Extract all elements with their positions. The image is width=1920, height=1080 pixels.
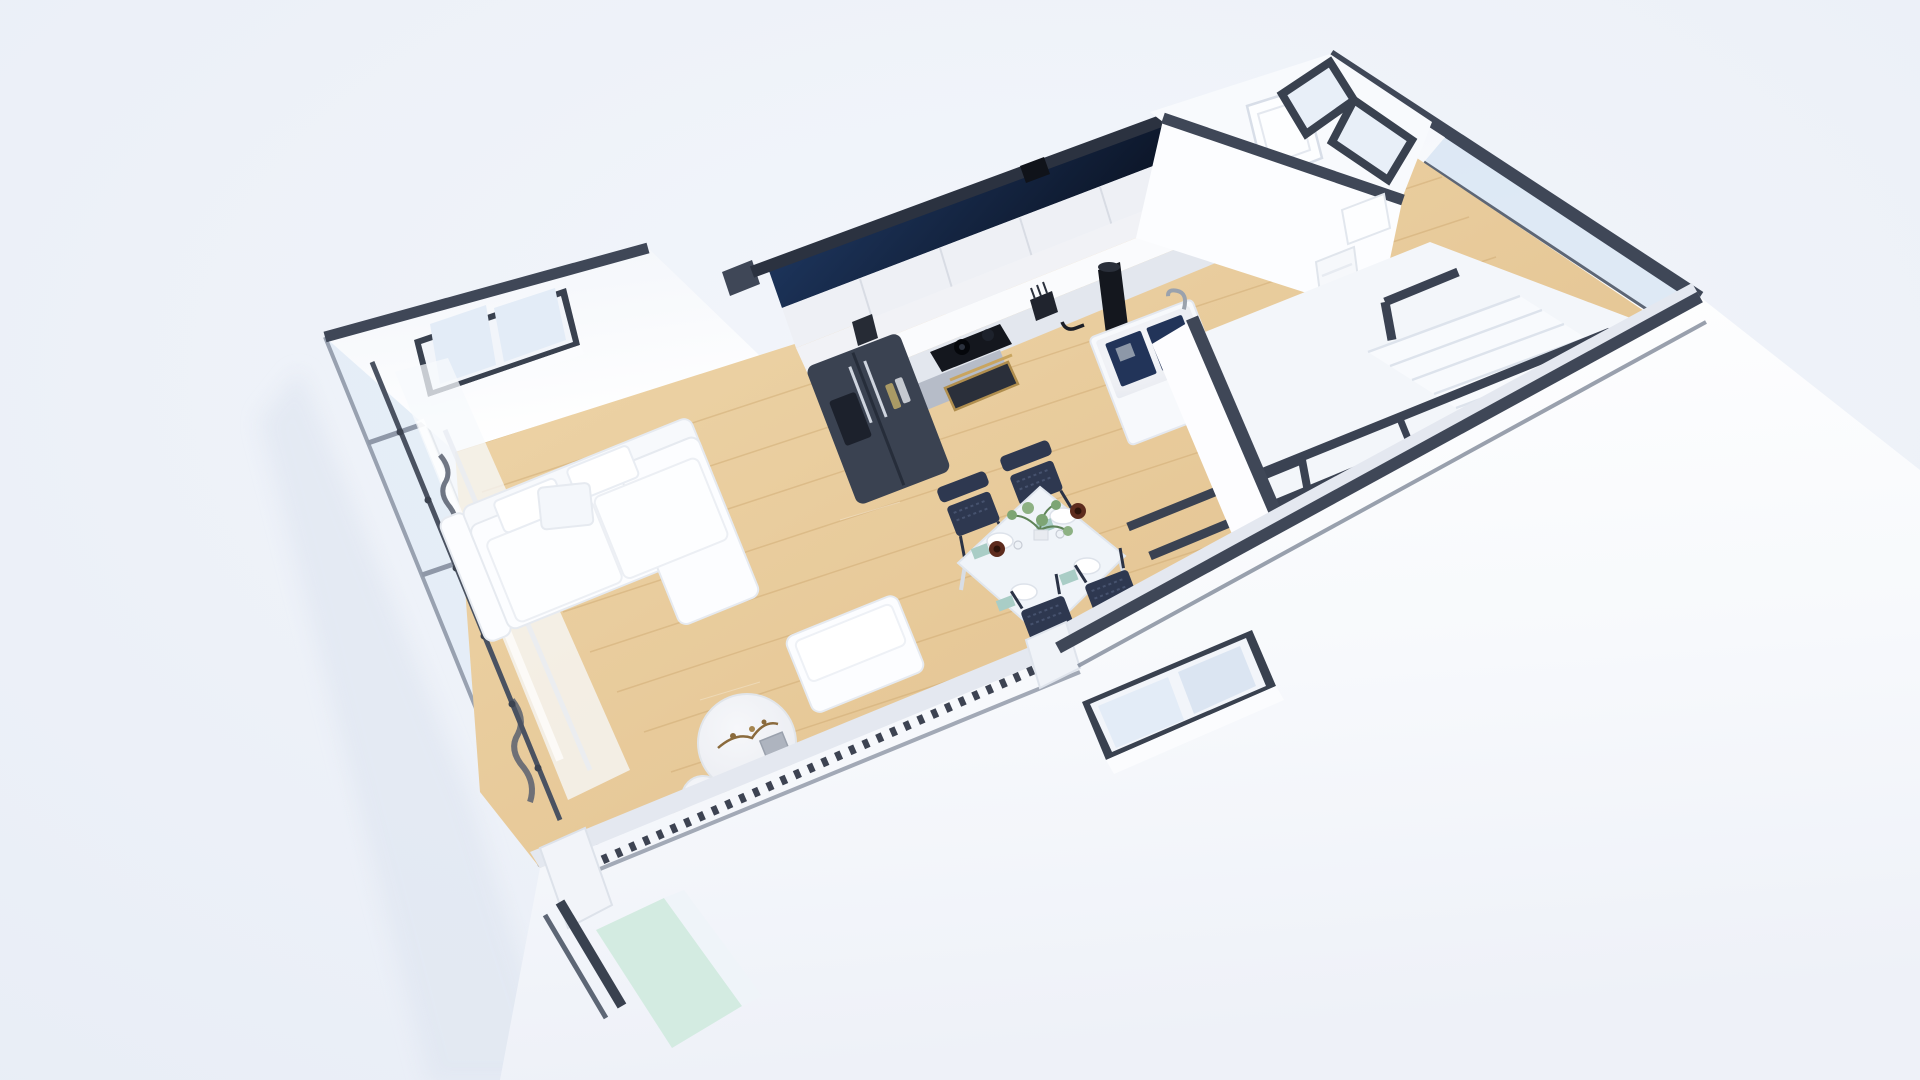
seat-cushion xyxy=(485,499,624,623)
cooktop xyxy=(930,324,1012,372)
countertop xyxy=(806,214,1208,394)
plant-centerpiece xyxy=(1007,500,1073,540)
throw-pillow xyxy=(538,483,594,530)
curtain-fold-shadow xyxy=(440,455,456,533)
curtain-rod xyxy=(372,362,560,820)
napkin xyxy=(996,595,1016,611)
fridge-handle xyxy=(850,367,872,423)
track-light-clip xyxy=(1020,157,1050,183)
back-wall-living xyxy=(325,248,760,452)
range-hood-inset xyxy=(940,276,1008,318)
napkin xyxy=(1059,569,1079,585)
corner-post xyxy=(540,828,612,928)
back-cushion xyxy=(493,477,567,533)
kitchen-feature-wall xyxy=(722,114,1180,308)
copper-bowl xyxy=(989,541,1005,557)
fridge-handle xyxy=(865,361,887,417)
wall-heater xyxy=(1342,194,1390,244)
plate xyxy=(1074,558,1100,574)
door-threshold xyxy=(1250,162,1312,208)
window-mullion xyxy=(422,555,480,575)
dining-chair xyxy=(1009,573,1083,659)
glass xyxy=(1056,530,1064,538)
background xyxy=(0,0,1920,1080)
towel-bar xyxy=(1062,322,1084,329)
book xyxy=(760,732,788,756)
bathroom-door xyxy=(1247,88,1322,180)
daybed-ottoman xyxy=(784,594,926,715)
ground-shadow xyxy=(260,289,1920,1080)
curtain-track-rail xyxy=(578,672,1080,878)
floor-mat xyxy=(668,772,772,852)
staircase xyxy=(1368,296,1630,422)
plate xyxy=(987,533,1013,549)
dining-table xyxy=(958,487,1126,658)
stairwell-glazing xyxy=(1424,136,1694,326)
right-wall xyxy=(1288,55,1700,364)
back-window xyxy=(414,288,584,406)
napkin xyxy=(1035,518,1055,534)
sink-basin xyxy=(1105,330,1157,387)
stair-hall xyxy=(1128,242,1662,556)
glass-wall-left xyxy=(325,317,598,866)
right-wall-window xyxy=(1374,180,1484,292)
water-dispenser xyxy=(829,391,872,446)
bathroom xyxy=(1136,54,1432,339)
dining-partition-wall xyxy=(1152,318,1318,572)
knife-block xyxy=(1030,282,1058,321)
faucet xyxy=(1167,287,1189,313)
back-cushion xyxy=(566,445,640,501)
sink-island xyxy=(1084,285,1233,446)
round-marble-coffee-table xyxy=(698,694,796,792)
upper-cabinets xyxy=(782,158,1186,348)
dining-chair xyxy=(1073,547,1147,633)
round-side-table xyxy=(682,776,724,818)
black-canister xyxy=(1098,262,1128,334)
marble-backsplash xyxy=(796,194,1196,370)
oven xyxy=(945,355,1018,410)
curtain-track-hooks xyxy=(575,668,1038,872)
copper-bowl xyxy=(1070,503,1086,519)
sofa-chaise xyxy=(617,435,761,627)
plate xyxy=(1050,508,1076,524)
door-bottles xyxy=(885,383,902,410)
seat-cushion xyxy=(593,457,730,581)
window-mullion xyxy=(476,687,534,707)
corner-window xyxy=(1282,62,1412,180)
wall-post xyxy=(1026,622,1080,688)
base-cabinets-gray xyxy=(902,350,1010,416)
render-canvas xyxy=(0,0,1920,1080)
floor-plan-render xyxy=(0,0,1920,1080)
plate xyxy=(1011,584,1037,600)
glass xyxy=(1014,541,1022,549)
lower-glass-door xyxy=(545,890,762,1048)
refrigerator xyxy=(805,332,951,506)
dining-set xyxy=(936,439,1148,659)
sink-basin xyxy=(1146,315,1198,372)
dining-chair xyxy=(999,439,1074,528)
curtain-fold-shadow xyxy=(512,700,532,802)
handrail-top xyxy=(1385,272,1458,302)
sheer-curtains xyxy=(372,358,630,820)
window-mullion xyxy=(368,423,426,443)
sofa-backrest xyxy=(461,416,705,547)
facade-window xyxy=(1082,630,1284,774)
bathroom-front-wall xyxy=(1136,120,1403,316)
wall-vent-panel xyxy=(1316,247,1364,339)
wood-floor xyxy=(455,137,1665,868)
base-cabinets xyxy=(818,236,1218,422)
front-facade xyxy=(500,283,1920,1080)
navy-accent-band xyxy=(768,122,1174,308)
coffee-maker xyxy=(852,314,878,346)
kitchen xyxy=(782,158,1233,506)
coffee-table-set xyxy=(668,694,796,852)
stair-railing xyxy=(1128,272,1632,556)
napkin xyxy=(971,543,991,559)
decor-branch xyxy=(718,723,778,748)
sectional-sofa xyxy=(437,416,761,696)
dining-chair xyxy=(936,470,1011,559)
